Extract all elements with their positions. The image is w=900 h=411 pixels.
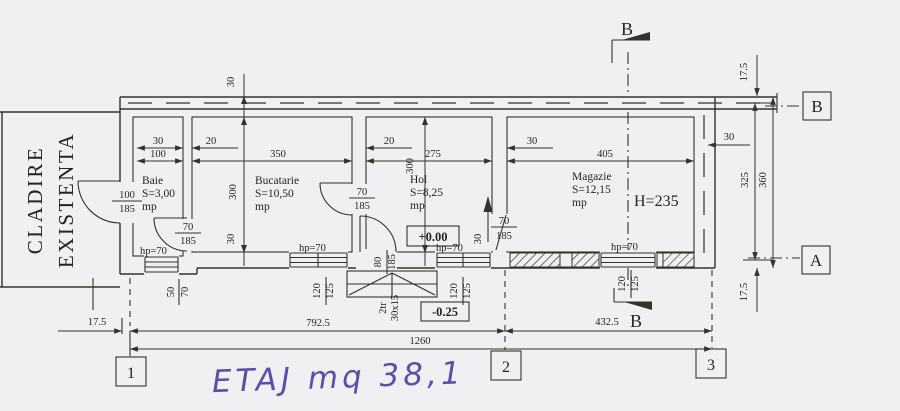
baie-area: S=3,00	[142, 188, 175, 200]
section-cut-b-bottom: B	[630, 311, 642, 331]
magazie-window-width: 120	[617, 276, 628, 292]
dim-hol-width: 275	[425, 149, 441, 160]
dim-p1: 20	[206, 136, 217, 147]
magazie-window-hp: hp=70	[611, 242, 638, 253]
bucatarie-door	[320, 183, 352, 215]
dim-parapet-bottom: 17.5	[739, 283, 750, 301]
magazie-unit: mp	[572, 197, 587, 209]
bucatarie-door-width: 70	[357, 187, 368, 198]
section-cut-b-top: B	[621, 19, 633, 39]
dim-baie-wall: 30	[153, 136, 164, 147]
magazie-name: Magazie	[572, 171, 612, 183]
dim-p3: 30	[527, 136, 538, 147]
existing-building-label-1: CLADIRE	[23, 146, 47, 255]
grid-axis-2: 2	[502, 359, 510, 376]
baie-window-width: 50	[166, 287, 177, 298]
handwritten-note: ETAJ mq 38,1	[211, 355, 465, 400]
dim-right-wall: 30	[724, 132, 735, 143]
bucatarie-area: S=10,50	[255, 188, 294, 200]
level-interior: +0.00	[419, 230, 448, 244]
baie-name: Baie	[142, 175, 163, 187]
dim-depth-outer: 360	[758, 172, 769, 188]
dim-bucatarie-depth: 300	[228, 184, 239, 200]
baie-unit: mp	[142, 201, 157, 213]
dim-hol-sill: 30	[473, 234, 484, 245]
dim-bucatarie-width: 350	[270, 149, 286, 160]
baie-door-height: 185	[180, 236, 196, 247]
bucatarie-name: Bucatarie	[255, 175, 299, 187]
level-exterior: -0.25	[432, 305, 458, 319]
cladire-door-width: 100	[119, 190, 135, 201]
floor-plan-sheet: CLADIRE EXISTENTA	[0, 0, 900, 411]
dim-span-2-3: 432.5	[595, 317, 619, 328]
floor-plan-drawing: CLADIRE EXISTENTA	[0, 0, 900, 411]
existing-building-label-2: EXISTENTA	[54, 132, 78, 268]
dim-span-total: 1260	[410, 336, 431, 347]
dim-bucatarie-sill: 30	[226, 234, 237, 245]
dim-top-wall: 30	[226, 77, 237, 88]
grid-axis-1: 1	[127, 365, 135, 382]
bucatarie-window-hp: hp=70	[299, 243, 326, 254]
section-marker-a: A	[810, 251, 823, 270]
room-labels: Baie S=3,00 mp Bucatarie S=10,50 mp Hol …	[142, 171, 679, 213]
baie-window-height: 70	[180, 287, 191, 298]
hol-unit: mp	[410, 200, 425, 212]
bucatarie-window-height: 125	[325, 283, 336, 299]
magazie-area: S=12,15	[572, 184, 611, 196]
dim-baie-width: 100	[150, 149, 166, 160]
entry-door	[360, 216, 396, 252]
grid-axis-3: 3	[707, 357, 715, 374]
hol-window-hp: hp=70	[436, 243, 463, 254]
dim-depth-inner: 325	[740, 172, 751, 188]
magazie-door-width: 70	[499, 216, 510, 227]
dim-parapet-top: 17.5	[739, 63, 750, 81]
cladire-door-height: 185	[119, 204, 135, 215]
bucatarie-window-width: 120	[312, 283, 323, 299]
stairs-size-label: 30x15	[390, 295, 401, 321]
dim-axis-offset: 17.5	[88, 317, 106, 328]
section-marker-b: B	[811, 97, 822, 116]
annotation: ETAJ mq 38,1	[211, 355, 465, 400]
hol-window-height: 125	[462, 283, 473, 299]
dimensions-top: 30 100 20 350 20 275 30 405 30	[137, 132, 750, 161]
entry-door-height: 185	[387, 254, 398, 270]
dim-p2: 20	[384, 136, 395, 147]
dim-hol-depth: 300	[405, 158, 416, 174]
magazie-door-height: 185	[496, 231, 512, 242]
ceiling-height-label: H=235	[634, 193, 679, 210]
stairs-count-label: 2tr	[378, 302, 389, 314]
stairs: 2tr 30x15	[347, 271, 437, 321]
baie-door-width: 70	[183, 222, 194, 233]
magazie-window-height: 125	[630, 276, 641, 292]
existing-building: CLADIRE EXISTENTA	[0, 112, 120, 310]
dim-magazie-width: 405	[597, 149, 613, 160]
baie-window-hp: hp=70	[140, 246, 167, 257]
dim-span-1-2: 792.5	[306, 318, 330, 329]
hol-window-width: 120	[449, 283, 460, 299]
dimensions-bottom: 17.5 792.5 432.5 1260	[58, 317, 712, 349]
dimensions-right: 17.5 325 360 17.5 B A	[739, 55, 831, 312]
hol-area: S=8,25	[410, 187, 443, 199]
entry-door-width: 80	[373, 257, 384, 268]
bucatarie-door-height: 185	[354, 201, 370, 212]
bucatarie-unit: mp	[255, 201, 270, 213]
level-marks: +0.00 -0.25	[407, 226, 469, 321]
cladire-door	[78, 181, 120, 223]
